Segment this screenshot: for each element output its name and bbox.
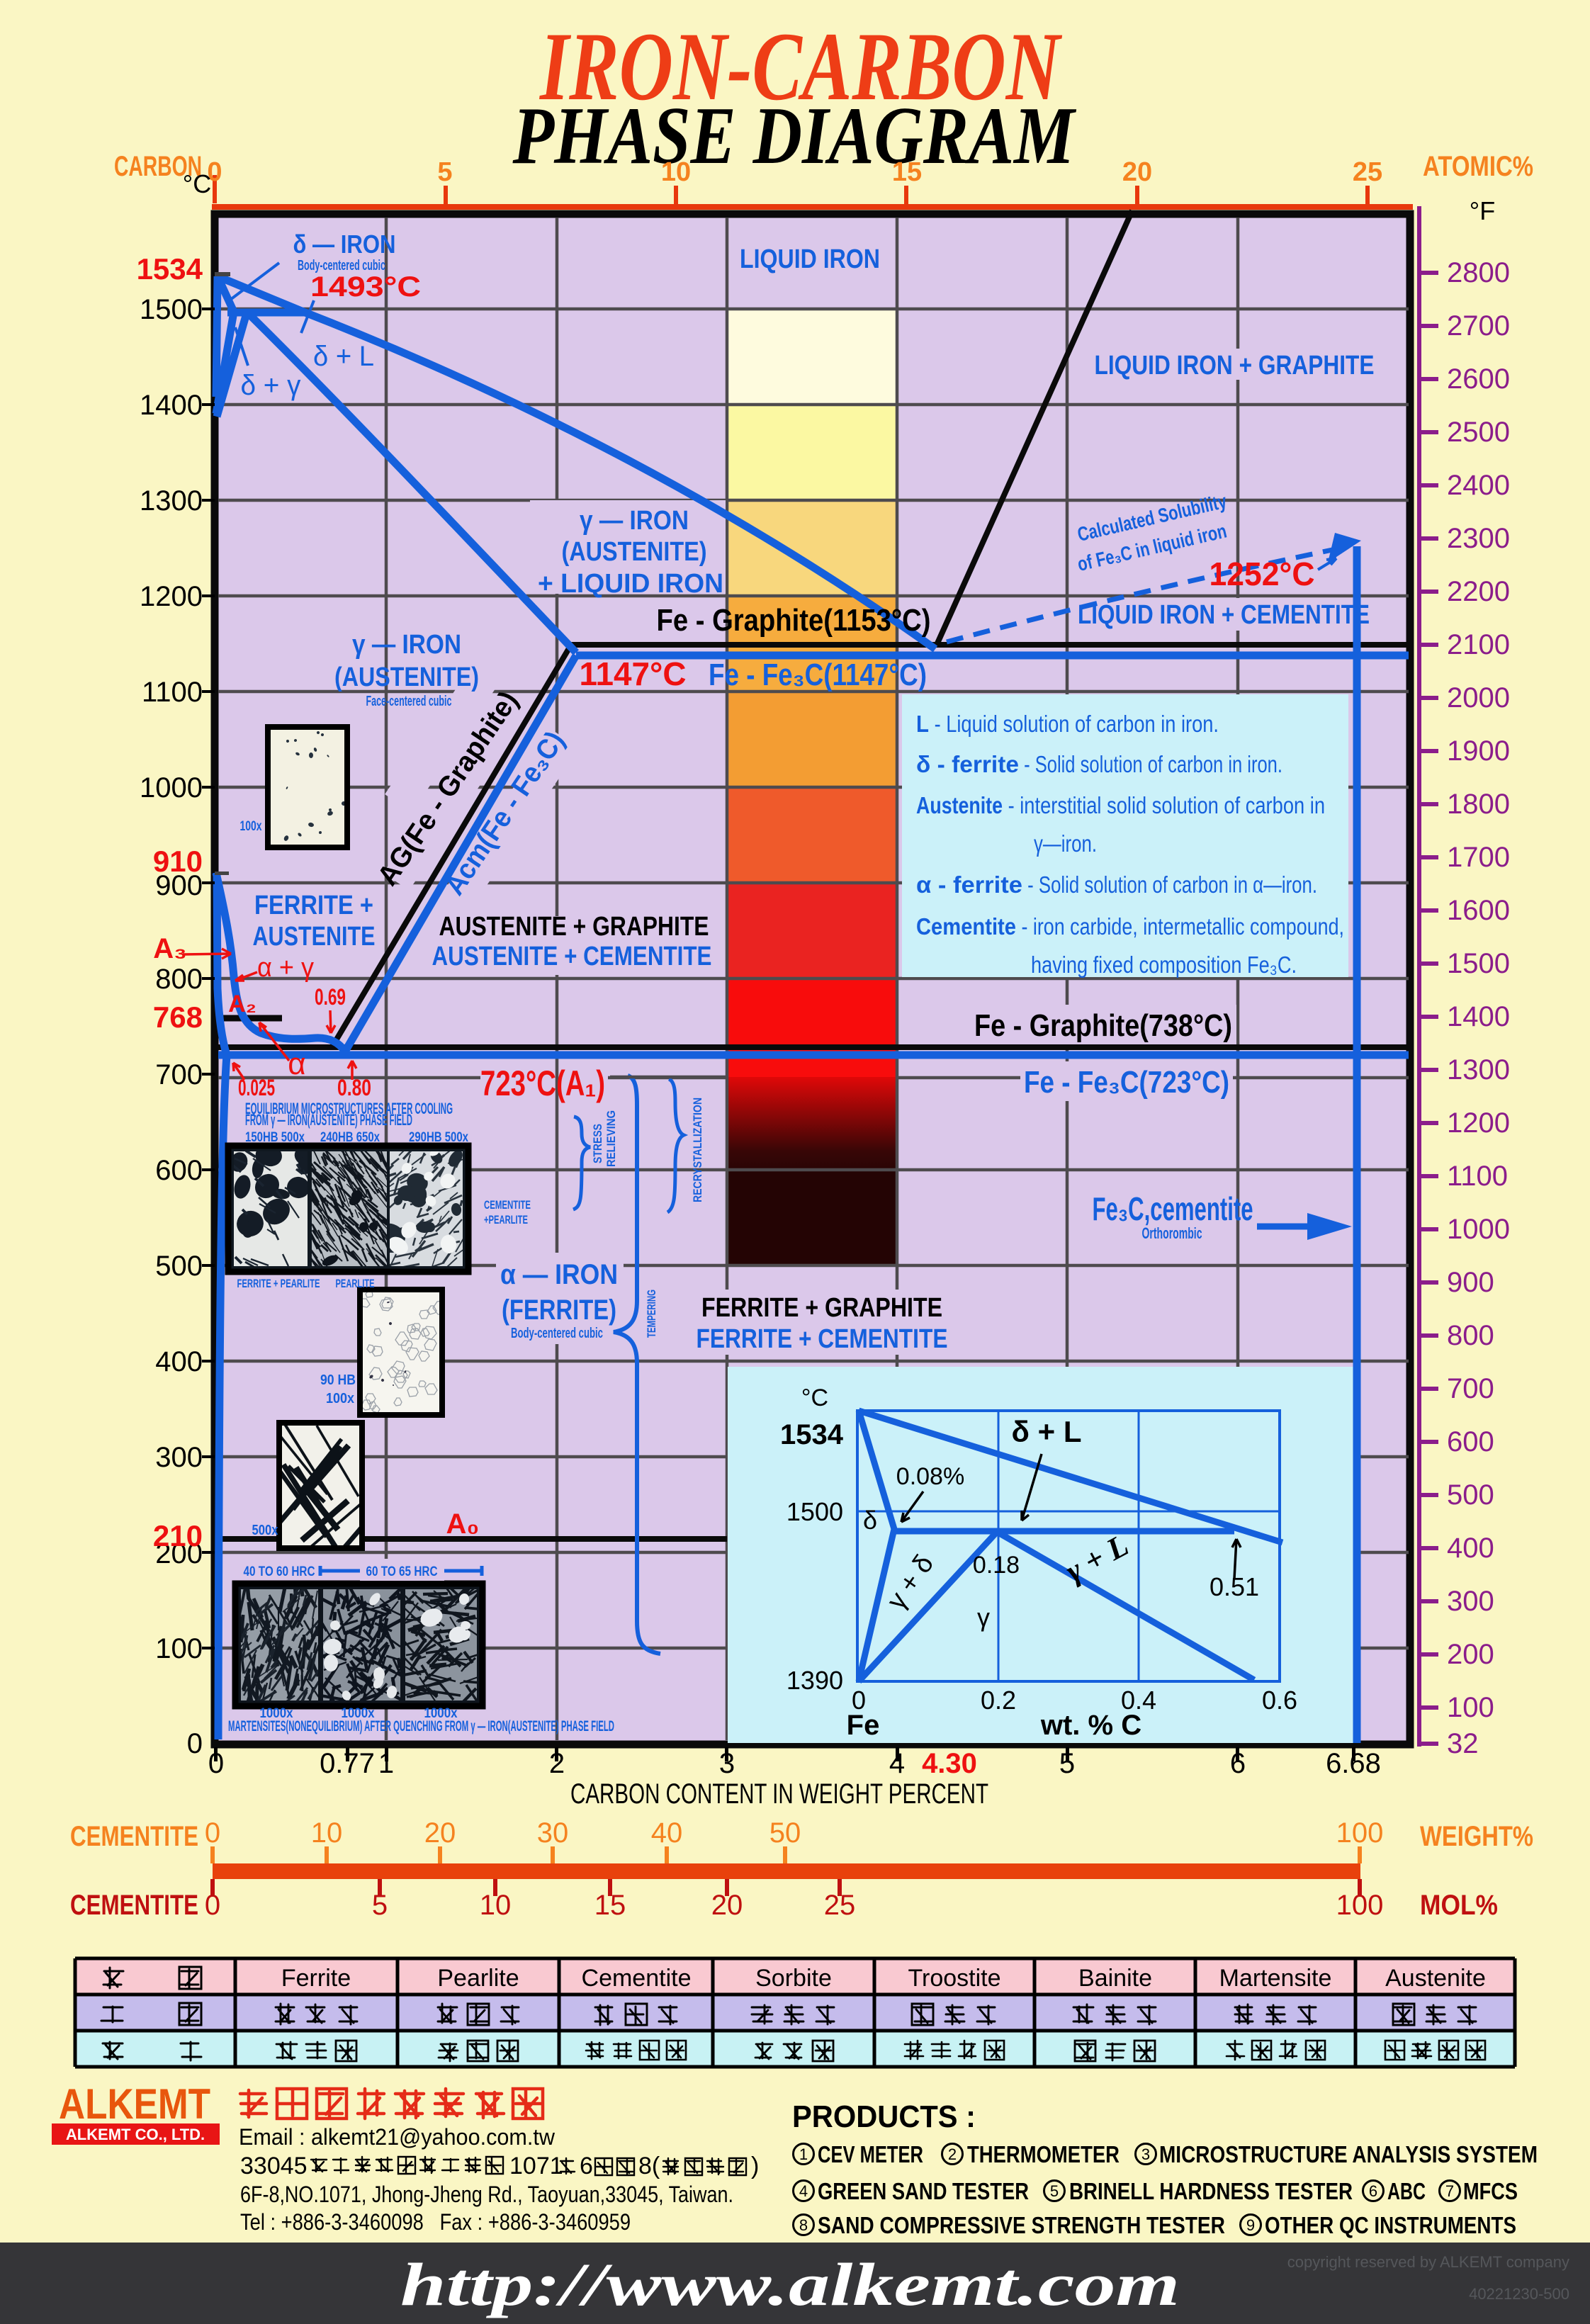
svg-text:MOL%: MOL% [1420,1890,1498,1921]
svg-text:500: 500 [155,1251,203,1282]
svg-text:50: 50 [769,1817,801,1849]
svg-text:Fe - Fe₃C(1147°C): Fe - Fe₃C(1147°C) [709,658,927,692]
svg-text:2100: 2100 [1447,629,1510,660]
svg-text:STRESS: STRESS [591,1124,604,1163]
svg-text:α — IRON: α — IRON [500,1259,618,1290]
svg-text:300: 300 [1447,1586,1494,1617]
svg-text:GREEN SAND TESTER: GREEN SAND TESTER [818,2178,1029,2204]
svg-text:1493°C: 1493°C [310,271,421,303]
svg-text:60 TO 65 HRC: 60 TO 65 HRC [366,1564,438,1579]
svg-text:A₃: A₃ [153,933,186,964]
svg-text:1252°C: 1252°C [1210,555,1315,592]
svg-text:1534: 1534 [780,1419,844,1450]
svg-text:40: 40 [651,1817,683,1849]
svg-text:MFCS: MFCS [1463,2178,1518,2204]
svg-text:γ: γ [977,1603,990,1632]
svg-text:http://www.alkemt.com: http://www.alkemt.com [400,2250,1180,2318]
svg-text:SAND COMPRESSIVE STRENGTH TEST: SAND COMPRESSIVE STRENGTH TESTER [818,2212,1225,2238]
svg-text:500x: 500x [252,1523,278,1538]
svg-text:Troostite: Troostite [908,1965,1000,1992]
svg-text:Ferrite: Ferrite [281,1965,351,1992]
svg-text:5: 5 [437,157,452,187]
svg-text:723°C(A₁): 723°C(A₁) [480,1064,605,1103]
svg-text:8(: 8( [638,2153,660,2179]
svg-text:210: 210 [153,1519,203,1552]
svg-text:2: 2 [948,2145,957,2163]
svg-text:1400: 1400 [1447,1001,1510,1032]
svg-text:100x: 100x [240,819,262,834]
svg-text:10: 10 [311,1817,343,1849]
svg-text:7: 7 [1445,2182,1454,2200]
svg-text:10: 10 [480,1890,512,1921]
svg-text:600: 600 [155,1155,203,1186]
svg-text:0.08%: 0.08% [896,1463,964,1490]
svg-text:L: L [916,711,929,737]
svg-text:Fe - Graphite(1153°C): Fe - Graphite(1153°C) [657,603,931,638]
svg-text:0.2: 0.2 [981,1686,1016,1715]
svg-text:1147°C: 1147°C [580,655,687,692]
svg-text:FERRITE + PEARLITE: FERRITE + PEARLITE [237,1277,320,1290]
svg-text:0.80: 0.80 [337,1075,371,1100]
svg-text:1390: 1390 [786,1666,843,1695]
svg-text:δ - ferrite: δ - ferrite [916,751,1019,777]
svg-text:25: 25 [1353,157,1382,187]
svg-text:RELIEVING: RELIEVING [604,1110,618,1167]
svg-text:δ + L: δ + L [313,341,374,372]
svg-text:100: 100 [1336,1817,1384,1849]
svg-text:CEMENTITE: CEMENTITE [70,1821,198,1852]
svg-text:RECRYSTALLIZATION: RECRYSTALLIZATION [691,1098,704,1202]
svg-text:0.6: 0.6 [1262,1686,1297,1715]
svg-text:40 TO 60 HRC: 40 TO 60 HRC [244,1564,315,1579]
svg-text:Cementite: Cementite [916,913,1016,940]
svg-text:Orthorombic: Orthorombic [1142,1224,1202,1242]
svg-text:FERRITE +: FERRITE + [254,891,373,920]
svg-text:MICROSTRUCTURE ANALYSIS SYSTEM: MICROSTRUCTURE ANALYSIS SYSTEM [1159,2141,1538,2167]
svg-text:copyright reserved by ALKEMT c: copyright reserved by ALKEMT company [1287,2253,1569,2271]
svg-text:100: 100 [155,1633,203,1664]
svg-text:2200: 2200 [1447,576,1510,607]
svg-text:400: 400 [155,1346,203,1377]
svg-text:having fixed composition Fe₃C.: having fixed composition Fe₃C. [1031,952,1297,978]
svg-text:FROM γ — IRON(AUSTENITE) PHASE: FROM γ — IRON(AUSTENITE) PHASE FIELD [245,1111,412,1129]
svg-text:- iron carbide, intermetallic: - iron carbide, intermetallic compound, [1016,913,1344,940]
svg-text:1000: 1000 [1447,1214,1510,1245]
svg-text:γ — IRON: γ — IRON [580,506,689,536]
svg-text:α: α [288,1047,305,1081]
svg-text:AUSTENITE + GRAPHITE: AUSTENITE + GRAPHITE [439,912,709,942]
svg-text:AUSTENITE: AUSTENITE [253,922,376,952]
svg-text:ALKEMT CO., LTD.: ALKEMT CO., LTD. [66,2126,205,2143]
svg-text:200: 200 [1447,1639,1494,1670]
svg-text:CARBON CONTENT IN WEIGHT PERCE: CARBON CONTENT IN WEIGHT PERCENT [570,1778,988,1810]
svg-text:30: 30 [537,1817,569,1849]
svg-text:°F: °F [1470,196,1495,225]
svg-text:CEMENTITE: CEMENTITE [484,1198,531,1212]
svg-text:MARTENSITES(NONEQUILIBRIUM) AF: MARTENSITES(NONEQUILIBRIUM) AFTER QUENCH… [228,1718,614,1734]
svg-text:1100: 1100 [142,677,203,708]
svg-text:150HB 500x: 150HB 500x [245,1130,305,1145]
svg-text:WEIGHT%: WEIGHT% [1420,1821,1533,1852]
svg-text:20: 20 [1122,157,1152,187]
svg-text:LIQUID IRON + CEMENTITE: LIQUID IRON + CEMENTITE [1078,600,1370,630]
svg-text:δ + γ: δ + γ [241,370,301,401]
svg-text:Face-centered cubic: Face-centered cubic [366,694,452,709]
svg-text:°C: °C [183,169,211,198]
svg-text:1500: 1500 [1447,948,1510,979]
svg-text:25: 25 [824,1890,856,1921]
svg-text:ABC: ABC [1387,2178,1426,2204]
svg-text:3: 3 [1141,2145,1150,2163]
svg-text:(FERRITE): (FERRITE) [502,1294,616,1326]
svg-text:2000: 2000 [1447,682,1510,713]
svg-text:10: 10 [661,157,691,187]
svg-text:Fe - Fe₃C(723°C): Fe - Fe₃C(723°C) [1024,1065,1229,1100]
svg-text:°C: °C [801,1384,828,1411]
svg-text:2500: 2500 [1447,417,1510,448]
svg-text:2400: 2400 [1447,470,1510,501]
svg-text:5: 5 [1059,1748,1075,1779]
svg-text:6: 6 [1230,1748,1246,1779]
svg-text:): ) [751,2153,759,2179]
svg-text:800: 800 [155,964,203,995]
svg-text:0.77: 0.77 [320,1748,375,1779]
svg-text:100: 100 [1336,1890,1384,1921]
svg-text:1800: 1800 [1447,789,1510,820]
svg-text:wt. % C: wt. % C [1040,1710,1141,1741]
svg-text:- Solid solution of carbon in: - Solid solution of carbon in α—iron. [1022,871,1317,898]
svg-text:1: 1 [799,2145,808,2163]
svg-text:400: 400 [1447,1533,1494,1564]
svg-text:1300: 1300 [1447,1054,1510,1085]
svg-text:FERRITE + GRAPHITE: FERRITE + GRAPHITE [701,1293,942,1323]
svg-text:OTHER QC INSTRUMENTS: OTHER QC INSTRUMENTS [1265,2212,1516,2238]
svg-text:2800: 2800 [1447,257,1510,288]
svg-text:CEV METER: CEV METER [818,2141,923,2167]
svg-text:Body-centered cubic: Body-centered cubic [511,1326,603,1341]
svg-text:- Solid solution of carbon in: - Solid solution of carbon in iron. [1019,751,1282,777]
svg-text:1300: 1300 [140,485,203,517]
svg-text:1500: 1500 [140,294,203,325]
svg-text:1000: 1000 [140,772,203,803]
svg-text:6F-8,NO.1071, Jhong-Jheng Rd.,: 6F-8,NO.1071, Jhong-Jheng Rd., Taoyuan,3… [240,2182,733,2207]
svg-text:8: 8 [799,2216,808,2234]
svg-text:1900: 1900 [1447,735,1510,767]
svg-text:700: 700 [155,1059,203,1090]
svg-text:ATOMIC%: ATOMIC% [1423,151,1533,182]
svg-text:5: 5 [372,1890,388,1921]
svg-text:1100: 1100 [1447,1161,1508,1192]
svg-text:600: 600 [1447,1426,1494,1457]
svg-text:AUSTENITE + CEMENTITE: AUSTENITE + CEMENTITE [432,942,712,971]
svg-text:Martensite: Martensite [1219,1965,1332,1992]
svg-text:1534: 1534 [137,252,203,286]
svg-text:2600: 2600 [1447,363,1510,395]
svg-text:LIQUID IRON: LIQUID IRON [740,244,880,274]
svg-text:33045: 33045 [240,2153,308,2179]
svg-text:1200: 1200 [1447,1107,1510,1139]
svg-text:γ — IRON: γ — IRON [352,630,461,660]
svg-text:40221230-500: 40221230-500 [1469,2285,1569,2303]
svg-text:1071: 1071 [509,2153,563,2179]
svg-text:1500: 1500 [786,1497,843,1526]
svg-text:6: 6 [1369,2182,1377,2200]
svg-text:Sorbite: Sorbite [755,1965,832,1992]
svg-text:Bainite: Bainite [1078,1965,1152,1992]
svg-text:500: 500 [1447,1479,1494,1511]
svg-text:4.30: 4.30 [922,1748,977,1779]
svg-text:32: 32 [1447,1728,1479,1759]
svg-text:δ: δ [863,1506,877,1535]
svg-text:γ—iron.: γ—iron. [1034,830,1097,857]
svg-text:4: 4 [799,2182,808,2200]
svg-text:CEMENTITE: CEMENTITE [70,1890,198,1921]
svg-text:- Liquid solution of carbon in: - Liquid solution of carbon in iron. [929,711,1219,737]
svg-text:α + γ: α + γ [257,953,314,983]
svg-text:+PEARLITE: +PEARLITE [484,1213,528,1226]
svg-text:Cementite: Cementite [582,1965,692,1992]
svg-text:FERRITE + CEMENTITE: FERRITE + CEMENTITE [697,1324,948,1354]
svg-text:Fe₃C,cementite: Fe₃C,cementite [1093,1190,1253,1227]
svg-text:Email : alkemt21@yahoo.com.tw: Email : alkemt21@yahoo.com.tw [239,2124,556,2150]
svg-text:900: 900 [1447,1267,1494,1298]
svg-text:20: 20 [711,1890,743,1921]
svg-text:Austenite: Austenite [1385,1965,1486,1992]
svg-text:- interstitial solid solution: - interstitial solid solution of carbon … [1003,792,1325,818]
svg-text:6: 6 [580,2153,593,2179]
svg-text:A₂: A₂ [228,991,256,1017]
svg-text:0.69: 0.69 [315,984,346,1010]
svg-text:PEARLITE: PEARLITE [336,1277,375,1290]
svg-text:15: 15 [892,157,922,187]
svg-text:1700: 1700 [1447,842,1510,873]
svg-text:LIQUID IRON + GRAPHITE: LIQUID IRON + GRAPHITE [1095,351,1375,380]
svg-text:δ — IRON: δ — IRON [293,230,396,259]
svg-text:α - ferrite: α - ferrite [916,871,1022,898]
svg-text:PRODUCTS :: PRODUCTS : [792,2099,976,2134]
svg-text:910: 910 [153,845,203,878]
svg-text:1400: 1400 [140,390,203,421]
svg-text:BRINELL HARDNESS TESTER: BRINELL HARDNESS TESTER [1069,2178,1353,2204]
svg-text:1600: 1600 [1447,895,1510,926]
svg-text:0: 0 [187,1728,203,1759]
svg-text:3: 3 [719,1748,735,1779]
svg-text:TEMPERING: TEMPERING [645,1290,658,1338]
svg-text:0: 0 [205,1817,220,1849]
svg-text:ALKEMT: ALKEMT [59,2080,210,2128]
svg-text:4: 4 [889,1748,905,1779]
svg-text:2700: 2700 [1447,310,1510,342]
svg-text:PHASE DIAGRAM: PHASE DIAGRAM [512,91,1077,181]
svg-text:1200: 1200 [140,581,203,612]
svg-text:2: 2 [549,1748,565,1779]
svg-text:Fe - Graphite(738°C): Fe - Graphite(738°C) [974,1008,1232,1043]
svg-text:9: 9 [1246,2216,1255,2234]
svg-text:THERMOMETER: THERMOMETER [967,2141,1120,2167]
svg-text:2300: 2300 [1447,523,1510,554]
svg-text:800: 800 [1447,1320,1494,1351]
svg-text:Pearlite: Pearlite [437,1965,519,1992]
svg-text:A₀: A₀ [446,1508,480,1540]
svg-text:90 HB: 90 HB [320,1372,356,1388]
svg-text:0: 0 [205,1890,220,1921]
svg-text:Tel : +886-3-3460098 Fax : +: Tel : +886-3-3460098 Fax : +886-3-346095… [240,2209,631,2235]
svg-text:Fe: Fe [847,1710,880,1741]
svg-text:δ + L: δ + L [1012,1415,1082,1448]
svg-text:Austenite: Austenite [916,792,1003,818]
svg-text:0.18: 0.18 [973,1552,1020,1579]
svg-text:20: 20 [424,1817,456,1849]
svg-text:+ LIQUID IRON: + LIQUID IRON [538,569,723,599]
svg-text:15: 15 [594,1890,626,1921]
svg-text:240HB 650x: 240HB 650x [320,1130,380,1145]
svg-text:(AUSTENITE): (AUSTENITE) [562,537,707,567]
svg-text:5: 5 [1050,2182,1059,2200]
svg-text:700: 700 [1447,1373,1494,1404]
svg-text:(AUSTENITE): (AUSTENITE) [334,662,479,692]
svg-text:6.68: 6.68 [1326,1748,1381,1779]
svg-text:300: 300 [155,1442,203,1473]
svg-text:100: 100 [1447,1692,1494,1723]
svg-text:290HB 500x: 290HB 500x [409,1130,468,1145]
svg-text:1: 1 [378,1748,394,1779]
svg-text:0: 0 [208,1748,224,1779]
svg-text:768: 768 [153,1000,203,1034]
svg-text:100x: 100x [326,1391,354,1406]
